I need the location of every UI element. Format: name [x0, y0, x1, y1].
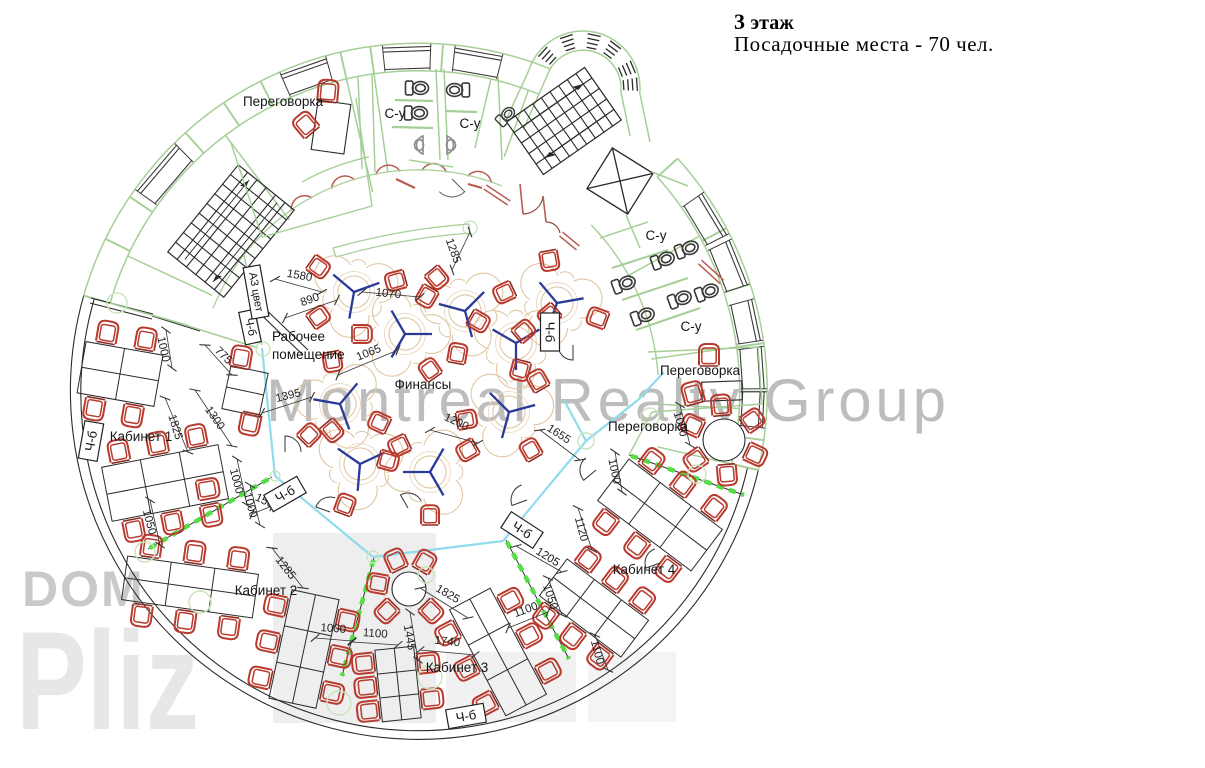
- svg-text:С-у: С-у: [681, 319, 702, 334]
- svg-text:Pliz: Pliz: [16, 602, 199, 759]
- svg-text:Кабинет 4: Кабинет 4: [613, 562, 676, 577]
- svg-text:Переговорка: Переговорка: [608, 419, 689, 434]
- svg-text:Переговорка: Переговорка: [243, 94, 324, 109]
- svg-text:Ч-б: Ч-б: [543, 322, 558, 342]
- svg-text:Переговорка: Переговорка: [660, 363, 741, 378]
- svg-text:С-у: С-у: [385, 106, 406, 121]
- svg-text:Посадочные места - 70 чел.: Посадочные места - 70 чел.: [734, 32, 994, 56]
- svg-text:1100: 1100: [362, 627, 388, 641]
- svg-text:Финансы: Финансы: [395, 377, 452, 392]
- svg-text:1000: 1000: [320, 622, 346, 636]
- svg-text:С-у: С-у: [646, 228, 667, 243]
- svg-text:Рабочее: Рабочее: [272, 329, 325, 344]
- svg-text:Кабинет 2: Кабинет 2: [235, 583, 298, 598]
- svg-text:С-у: С-у: [460, 116, 481, 131]
- svg-text:3 этаж: 3 этаж: [734, 9, 794, 34]
- svg-text:Кабинет 1: Кабинет 1: [110, 429, 173, 444]
- svg-text:Кабинет 3: Кабинет 3: [426, 660, 489, 675]
- svg-text:помещение: помещение: [272, 347, 345, 362]
